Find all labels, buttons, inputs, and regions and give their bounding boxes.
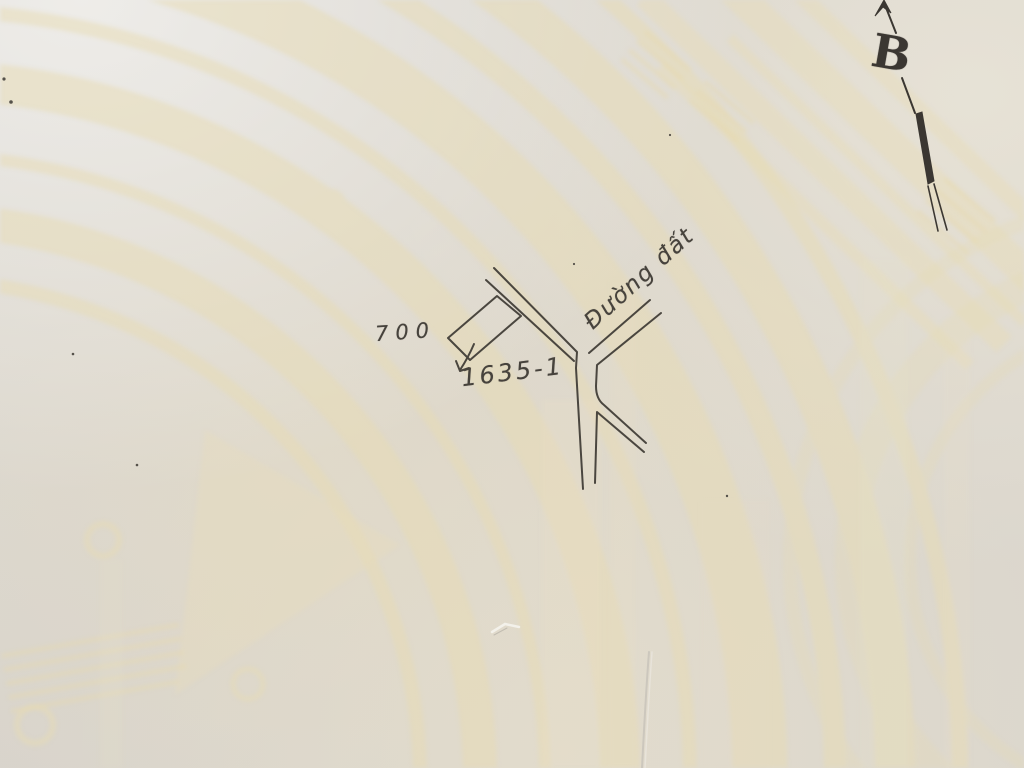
north-shaft-middle (902, 78, 915, 113)
road-edge-northeast-lower (596, 313, 661, 443)
road-edge-southeast-branch (595, 412, 644, 483)
parcel-rectangle (448, 296, 521, 360)
cadastral-sketch-photo: 700 1635-1 Đường đất B (0, 0, 1024, 768)
north-needle-spindle (916, 112, 934, 184)
area-label: 700 (374, 318, 437, 346)
road-edge-northwest-right (486, 280, 574, 361)
paper-crease-scratch (492, 624, 652, 768)
north-letter: B (868, 27, 914, 79)
